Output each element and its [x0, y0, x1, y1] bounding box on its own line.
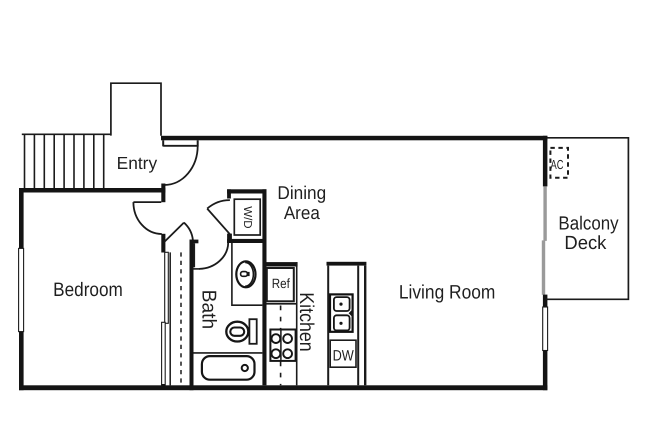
svg-text:Area: Area	[284, 202, 321, 223]
svg-text:Living Room: Living Room	[399, 282, 495, 304]
svg-text:Entry: Entry	[117, 153, 158, 173]
svg-text:Balcony: Balcony	[558, 213, 619, 234]
svg-text:AC: AC	[550, 157, 563, 172]
svg-text:DW: DW	[333, 348, 355, 365]
svg-text:Ref: Ref	[272, 276, 290, 291]
svg-text:Bath: Bath	[197, 290, 219, 330]
svg-text:Bedroom: Bedroom	[53, 279, 123, 301]
svg-text:Deck: Deck	[564, 233, 606, 254]
svg-text:W/D: W/D	[241, 206, 253, 228]
svg-text:Dining: Dining	[277, 182, 326, 203]
svg-text:Kitchen: Kitchen	[295, 292, 317, 351]
